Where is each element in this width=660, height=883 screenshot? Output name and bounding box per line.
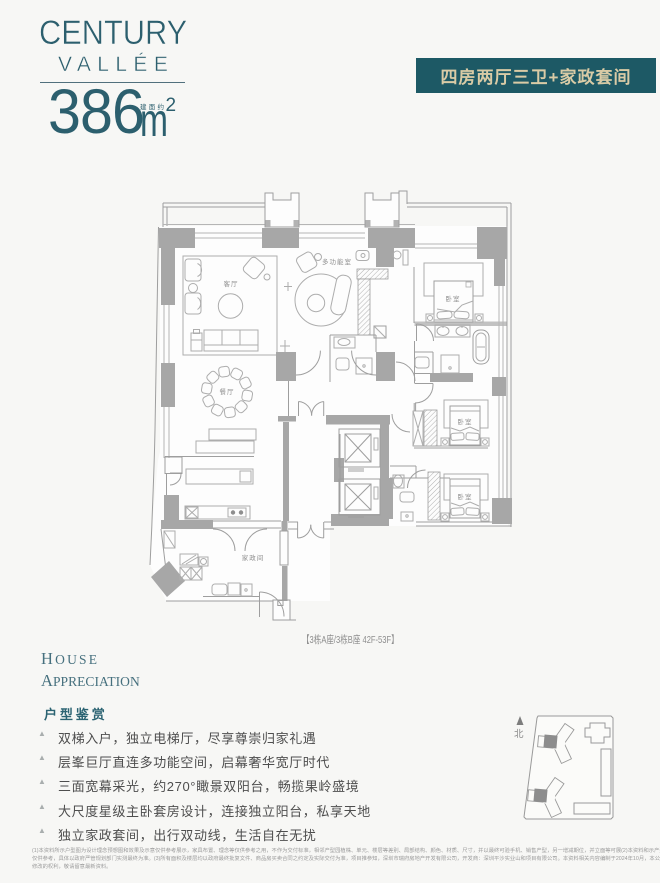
svg-text:卧室: 卧室 — [458, 417, 473, 426]
svg-text:家政间: 家政间 — [242, 553, 265, 562]
svg-text:北: 北 — [514, 729, 524, 740]
svg-text:卧室: 卧室 — [458, 492, 473, 501]
svg-text:客厅: 客厅 — [224, 279, 239, 288]
svg-text:餐厅: 餐厅 — [220, 387, 235, 396]
svg-text:多功能室: 多功能室 — [322, 257, 352, 266]
svg-text:卧室: 卧室 — [446, 294, 461, 303]
